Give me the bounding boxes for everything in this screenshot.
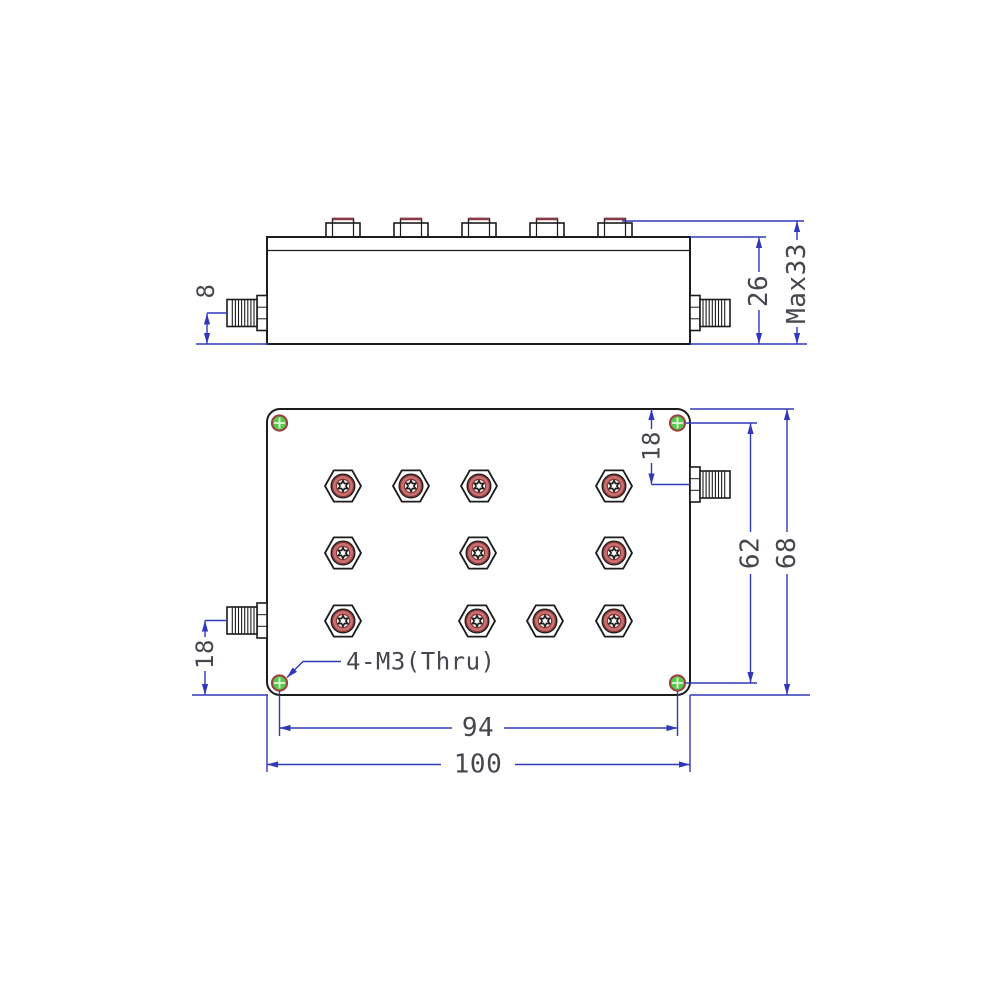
drawing-sheet: 8 26 Max33 18 62 68 18 94 100 4-M3(Thru) (0, 0, 1000, 1000)
sma-connector-output (690, 467, 730, 502)
sma-connector-input (227, 603, 267, 638)
dim-18-right-label: 18 (638, 431, 666, 461)
dim-94-label: 94 (462, 713, 494, 743)
tuning-screw (393, 470, 429, 501)
dim-18-left-label: 18 (191, 639, 219, 669)
mounting-hole (670, 675, 685, 690)
side-view (227, 219, 730, 345)
tuning-screw (325, 605, 361, 636)
dim-100-label: 100 (454, 750, 502, 780)
sma-connector-right (690, 296, 730, 331)
filter-body-side (267, 237, 690, 344)
dim-62-label: 62 (736, 537, 766, 569)
tuning-screw (325, 470, 361, 501)
dim-26-label: 26 (744, 275, 774, 307)
sma-connector-left (227, 296, 267, 331)
mounting-hole-note: 4-M3(Thru) (346, 648, 496, 676)
hex-lock-nut-side (462, 219, 496, 238)
tuning-screw (325, 537, 361, 568)
tuning-screw (459, 605, 495, 636)
dim-8-label: 8 (192, 284, 220, 299)
tuning-screw (596, 470, 632, 501)
top-lock-nuts (326, 219, 632, 238)
mounting-hole (272, 675, 287, 690)
hex-lock-nut-side (326, 219, 360, 238)
mounting-hole (272, 415, 287, 430)
tuning-screw (596, 537, 632, 568)
mounting-hole (670, 415, 685, 430)
dim-68-label: 68 (772, 537, 802, 569)
tuning-screw (461, 470, 497, 501)
tuning-screw (527, 605, 563, 636)
technical-drawing: 8 26 Max33 18 62 68 18 94 100 4-M3(Thru) (0, 0, 1000, 1000)
hex-lock-nut-side (530, 219, 564, 238)
dim-max33-label: Max33 (782, 243, 812, 324)
tuning-screw (460, 537, 496, 568)
tuning-screw (596, 605, 632, 636)
hex-lock-nut-side (394, 219, 428, 238)
